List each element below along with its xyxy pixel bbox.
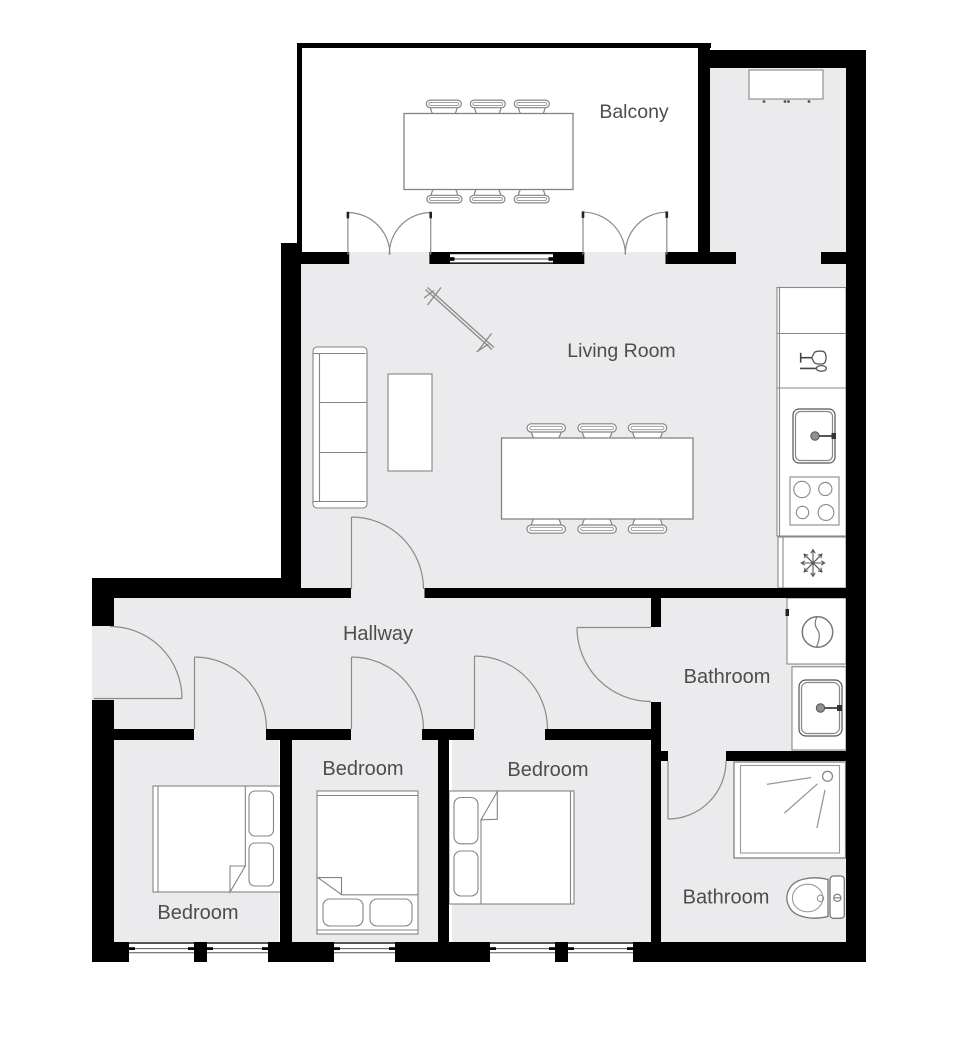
svg-text:Bedroom: Bedroom	[157, 902, 238, 924]
svg-text:Hallway: Hallway	[343, 623, 413, 645]
svg-text:Bedroom: Bedroom	[322, 758, 403, 780]
svg-text:Balcony: Balcony	[599, 101, 669, 123]
svg-text:Bedroom: Bedroom	[507, 759, 588, 781]
svg-text:Bathroom: Bathroom	[683, 887, 770, 909]
svg-text:Bathroom: Bathroom	[684, 666, 771, 688]
svg-text:Living Room: Living Room	[567, 340, 675, 362]
